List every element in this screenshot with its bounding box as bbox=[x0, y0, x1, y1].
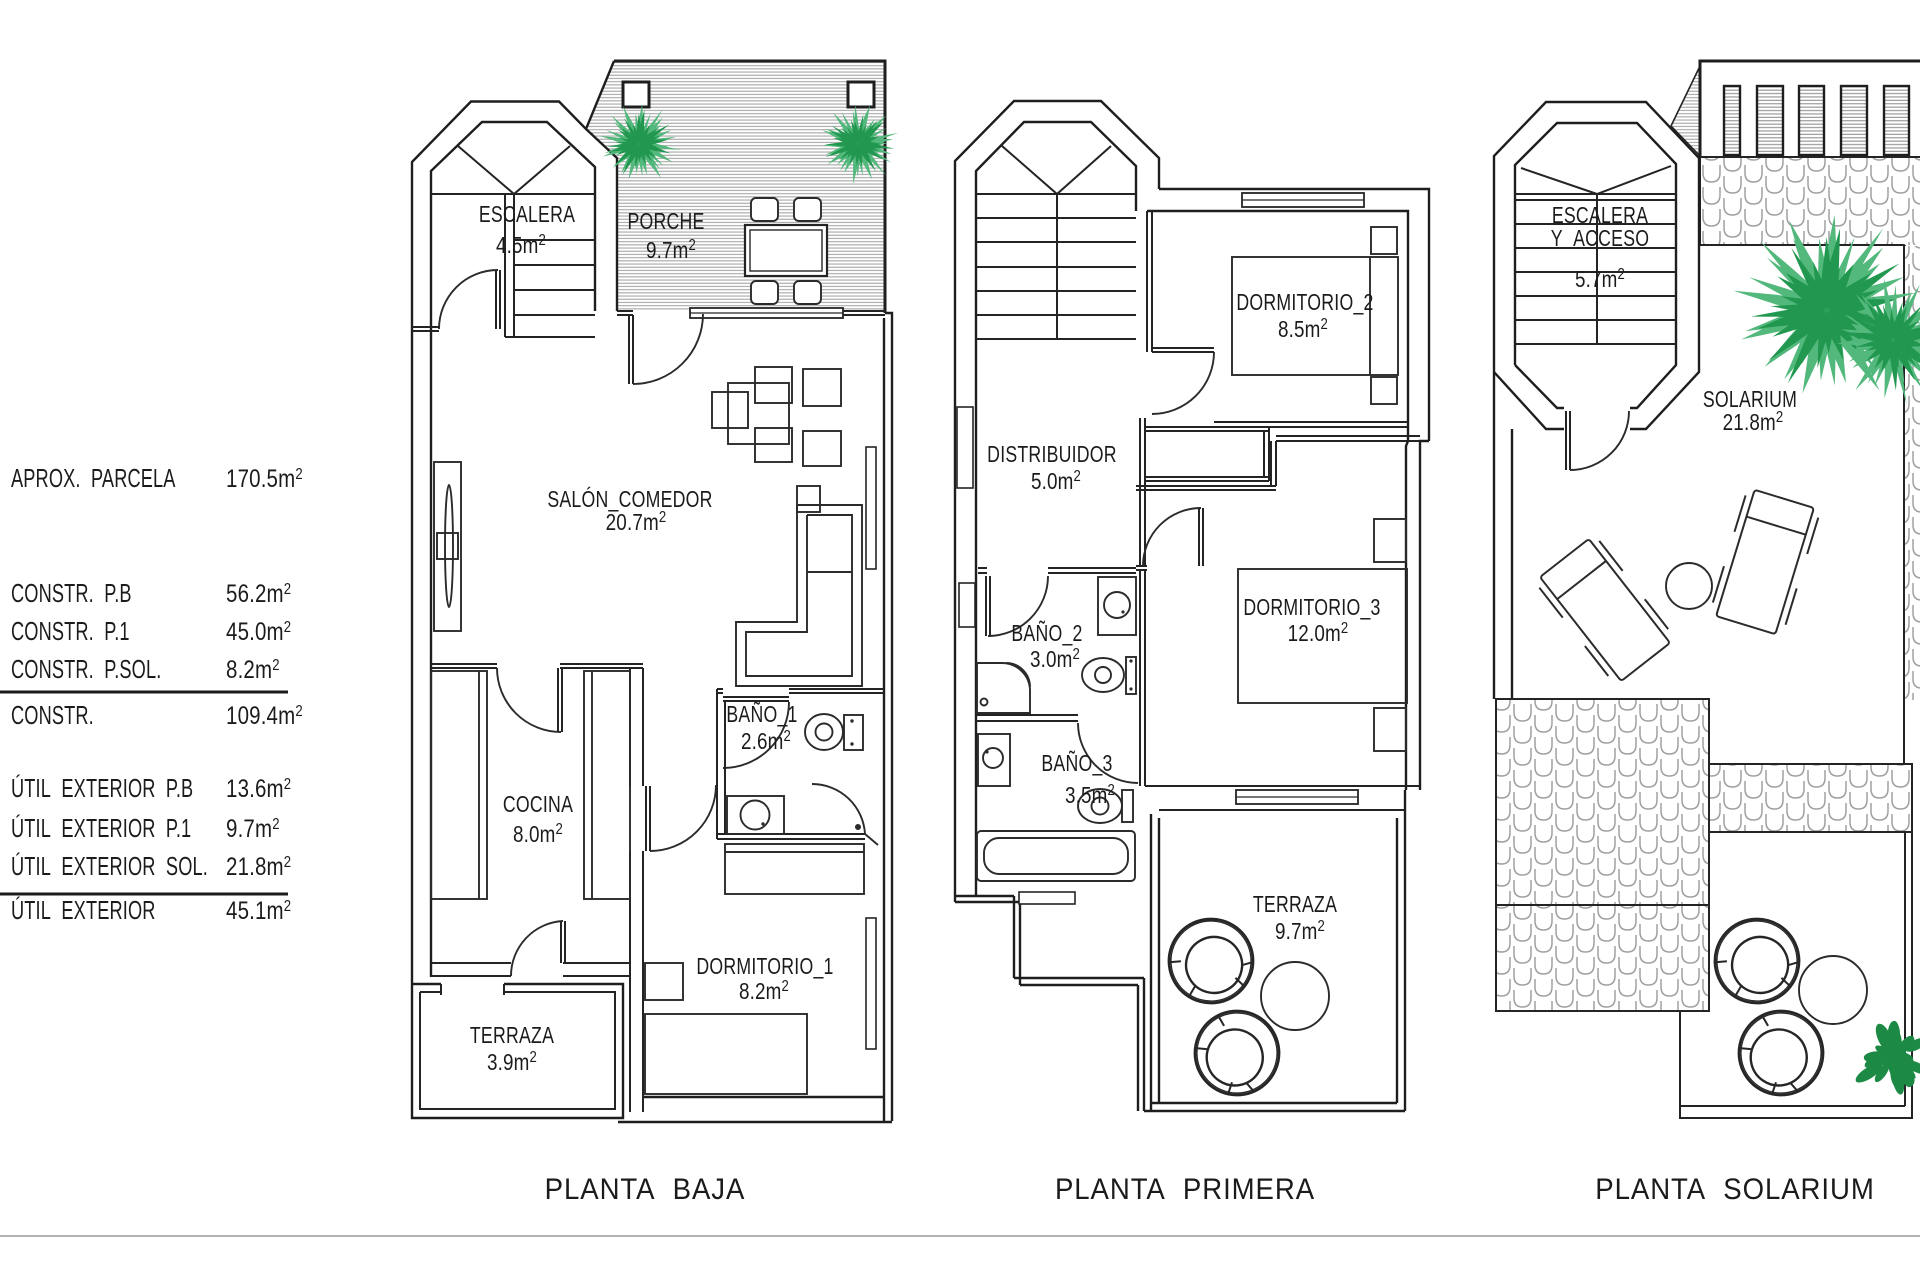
svg-text:COCINA: COCINA bbox=[503, 792, 573, 818]
svg-text:ESCALERA: ESCALERA bbox=[479, 202, 575, 228]
svg-text:DORMITORIO_3: DORMITORIO_3 bbox=[1243, 595, 1380, 621]
svg-text:13.6m2: 13.6m2 bbox=[226, 774, 291, 802]
svg-text:ÚTIL EXTERIOR: ÚTIL EXTERIOR bbox=[11, 896, 156, 925]
svg-text:8.0m2: 8.0m2 bbox=[513, 821, 563, 848]
svg-text:2.6m2: 2.6m2 bbox=[741, 728, 791, 755]
svg-text:BAÑO_2: BAÑO_2 bbox=[1011, 620, 1082, 647]
svg-text:3.5m2: 3.5m2 bbox=[1065, 782, 1115, 809]
svg-text:ÚTIL EXTERIOR P.B: ÚTIL EXTERIOR P.B bbox=[11, 774, 193, 803]
svg-text:21.8m2: 21.8m2 bbox=[1723, 409, 1784, 436]
svg-text:PLANTA BAJA: PLANTA BAJA bbox=[545, 1173, 746, 1206]
svg-text:CONSTR. P.1: CONSTR. P.1 bbox=[11, 617, 130, 646]
svg-text:SALÓN_COMEDOR: SALÓN_COMEDOR bbox=[547, 487, 712, 513]
svg-text:9.7m2: 9.7m2 bbox=[1275, 918, 1325, 945]
svg-text:5.7m2: 5.7m2 bbox=[1575, 266, 1625, 293]
svg-text:DORMITORIO_1: DORMITORIO_1 bbox=[696, 954, 833, 980]
svg-text:56.2m2: 56.2m2 bbox=[226, 579, 291, 607]
svg-text:ÚTIL EXTERIOR SOL.: ÚTIL EXTERIOR SOL. bbox=[11, 852, 208, 881]
svg-text:CONSTR. P.B: CONSTR. P.B bbox=[11, 579, 132, 608]
svg-text:3.9m2: 3.9m2 bbox=[487, 1049, 537, 1076]
svg-text:45.0m2: 45.0m2 bbox=[226, 617, 291, 645]
svg-text:PORCHE: PORCHE bbox=[627, 209, 704, 235]
svg-text:170.5m2: 170.5m2 bbox=[226, 464, 303, 492]
svg-text:8.2m2: 8.2m2 bbox=[739, 978, 789, 1005]
svg-text:9.7m2: 9.7m2 bbox=[226, 814, 280, 842]
svg-text:12.0m2: 12.0m2 bbox=[1288, 620, 1349, 647]
svg-text:Y ACCESO: Y ACCESO bbox=[1551, 226, 1649, 252]
svg-text:8.2m2: 8.2m2 bbox=[226, 655, 280, 683]
svg-text:CONSTR.: CONSTR. bbox=[11, 701, 94, 730]
svg-text:PLANTA SOLARIUM: PLANTA SOLARIUM bbox=[1595, 1173, 1874, 1206]
svg-text:5.0m2: 5.0m2 bbox=[1031, 468, 1081, 495]
svg-text:TERRAZA: TERRAZA bbox=[470, 1023, 554, 1049]
svg-text:ÚTIL EXTERIOR P.1: ÚTIL EXTERIOR P.1 bbox=[11, 814, 191, 843]
svg-text:BAÑO_3: BAÑO_3 bbox=[1041, 750, 1112, 777]
svg-text:DISTRIBUIDOR: DISTRIBUIDOR bbox=[987, 442, 1117, 468]
svg-text:20.7m2: 20.7m2 bbox=[606, 509, 667, 536]
svg-text:8.5m2: 8.5m2 bbox=[1278, 316, 1328, 343]
svg-text:DORMITORIO_2: DORMITORIO_2 bbox=[1236, 290, 1373, 316]
svg-text:3.0m2: 3.0m2 bbox=[1030, 646, 1080, 673]
svg-text:PLANTA PRIMERA: PLANTA PRIMERA bbox=[1055, 1173, 1315, 1206]
svg-text:9.7m2: 9.7m2 bbox=[646, 237, 696, 264]
svg-text:45.1m2: 45.1m2 bbox=[226, 896, 291, 924]
svg-text:21.8m2: 21.8m2 bbox=[226, 852, 291, 880]
svg-text:CONSTR. P.SOL.: CONSTR. P.SOL. bbox=[11, 655, 161, 684]
svg-text:BAÑO_1: BAÑO_1 bbox=[726, 701, 797, 728]
svg-text:4.5m2: 4.5m2 bbox=[496, 232, 546, 259]
svg-text:109.4m2: 109.4m2 bbox=[226, 701, 303, 729]
svg-text:ESCALERA: ESCALERA bbox=[1552, 203, 1648, 229]
svg-text:APROX. PARCELA: APROX. PARCELA bbox=[11, 464, 176, 493]
svg-text:TERRAZA: TERRAZA bbox=[1253, 892, 1337, 918]
